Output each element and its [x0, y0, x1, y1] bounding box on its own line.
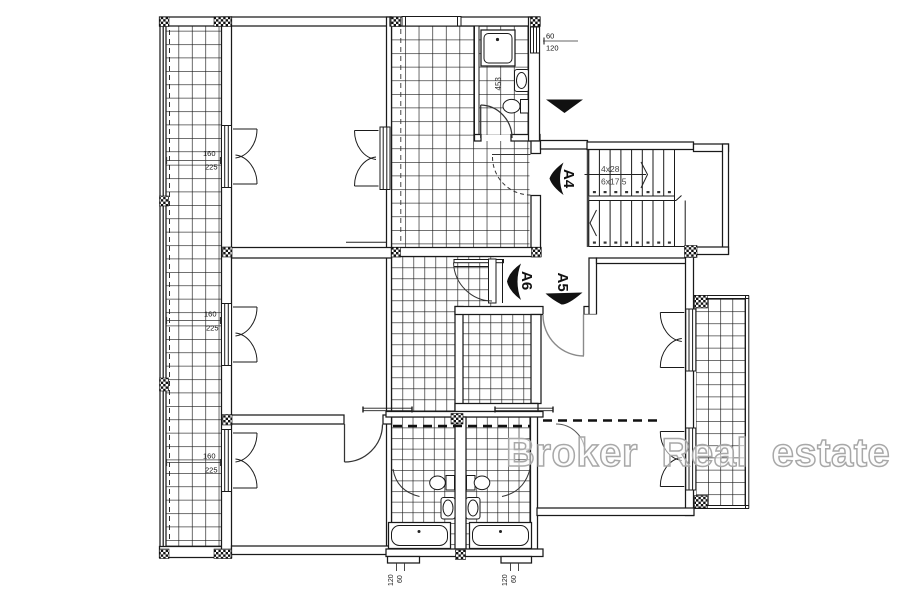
svg-text:453: 453 — [494, 77, 503, 91]
svg-text:160: 160 — [203, 149, 216, 158]
svg-text:160: 160 — [203, 452, 216, 461]
svg-text:60: 60 — [511, 575, 518, 583]
svg-text:60: 60 — [546, 32, 554, 41]
svg-text:225: 225 — [205, 466, 218, 475]
svg-text:A4: A4 — [560, 169, 577, 189]
svg-text:225: 225 — [206, 324, 219, 333]
svg-text:60: 60 — [397, 575, 404, 583]
svg-text:6x17.5: 6x17.5 — [601, 177, 627, 187]
svg-text:4x28: 4x28 — [601, 164, 620, 174]
svg-text:225: 225 — [205, 163, 218, 172]
svg-text:A6: A6 — [518, 271, 535, 290]
svg-text:A5: A5 — [554, 273, 571, 292]
svg-text:120: 120 — [546, 44, 559, 53]
svg-text:Broker Real estate: Broker Real estate — [506, 431, 890, 475]
svg-text:120: 120 — [502, 574, 509, 586]
svg-text:160: 160 — [204, 310, 217, 319]
svg-text:120: 120 — [388, 574, 395, 586]
